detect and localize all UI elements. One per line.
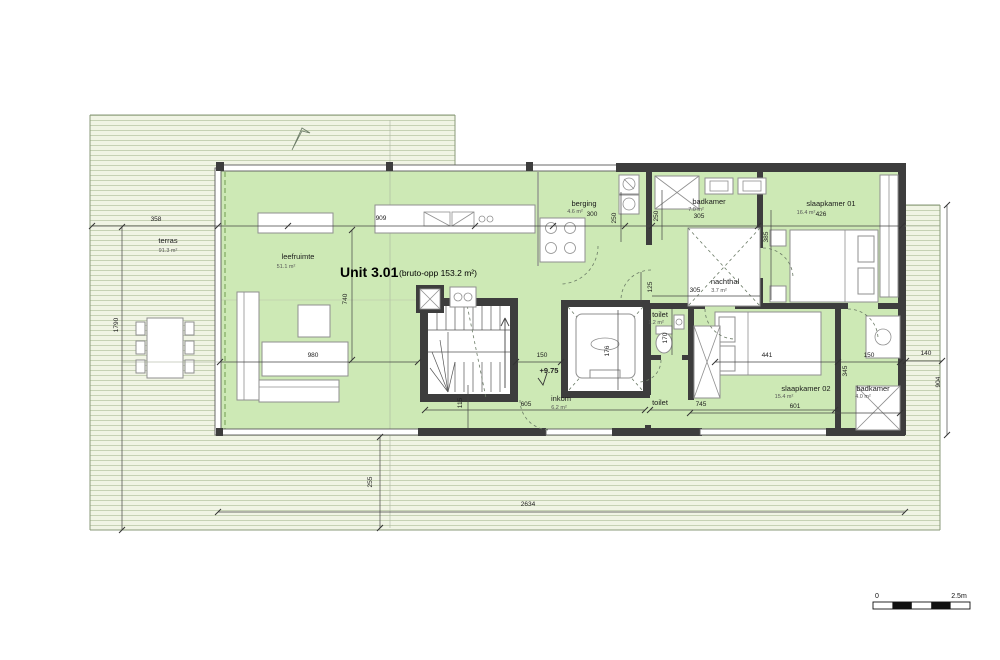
laundry-appliances [619,175,639,214]
pillow [719,346,735,371]
room-label-terras: terras [158,236,177,245]
hand-basin [674,315,684,329]
room-label-slaapkamer1: slaapkamer 01 [806,199,855,208]
tv-cabinet [258,213,333,233]
dim-300: 300 [587,211,598,218]
dim-745: 745 [696,401,707,408]
dim-255: 255 [367,476,374,487]
coffee-table [298,305,330,337]
room-area-berging: 4.6 m² [567,209,583,215]
room-label-badkamer1: badkamer [692,197,726,206]
room-label-leefruimte: leefruimte [282,252,315,261]
staircase [420,298,518,402]
room-area-terras: 91.3 m² [159,248,178,254]
dim-170: 170 [662,332,669,343]
dim-358: 358 [151,216,162,223]
rug [262,342,348,376]
room-label-slaapkamer2: slaapkamer 02 [781,384,830,393]
dim-441: 441 [762,352,773,359]
unit-title: Unit 3.01 [340,264,399,280]
pillow [858,236,874,262]
dim-305-badkamer: 305 [694,213,705,220]
dim-305-nachthal: 305 [690,287,701,294]
room-area-inkom: 6.2 m² [551,405,567,411]
room-area-nachthal: 3.7 m² [711,288,727,294]
room-area-leefruimte: 51.1 m² [277,264,296,270]
dim-250a: 250 [611,212,618,223]
dim-2634: 2634 [521,501,536,508]
level-marker: +9.75 [540,366,559,375]
elevator-door [590,370,620,378]
room-label-toilet2: toilet [652,398,669,407]
floor-plan-page: Unit 3.01 (bruto-opp 153.2 m²) +9.75 ter… [0,0,1000,660]
room-area-badkamer2: 4.0 m² [855,394,871,400]
room-area-slaapkamer1: 16.4 m² [797,210,816,216]
sofa [237,292,259,400]
room-area-slaapkamer2: 15.4 m² [775,394,794,400]
scale-bar-end: 2.5m [951,593,967,600]
dim-150-hall: 150 [537,352,548,359]
room-label-badkamer2: badkamer [856,384,890,393]
washbasin [738,178,766,194]
scale-bar: 0 2.5m [873,593,970,609]
unit-gross-area: (bruto-opp 153.2 m²) [399,268,477,278]
pillow [719,317,735,342]
pillow [858,268,874,294]
dim-385: 385 [763,231,770,242]
dim-909: 909 [376,215,387,222]
dim-125: 125 [647,281,654,292]
scale-bar-start: 0 [875,593,879,600]
washbasin [705,178,733,194]
kitchen-counter [375,205,535,233]
dim-140: 140 [921,350,932,357]
room-label-inkom: inkom [551,394,571,403]
room-label-nachthal: nachthal [711,277,740,286]
dim-740: 740 [342,293,349,304]
room-label-toilet1: toilet [652,310,669,319]
dim-601: 601 [790,403,801,410]
dim-904: 904 [935,376,942,387]
room-area-toilet1: 1.2 m² [648,320,664,326]
nightstand [770,286,786,302]
dim-980: 980 [308,352,319,359]
dim-176: 176 [604,345,611,356]
dim-1790: 1790 [113,317,120,332]
dim-345: 345 [842,365,849,376]
dim-150-badkamer: 150 [864,352,875,359]
nightstand [770,230,786,246]
terrace-dining-set [136,318,194,378]
dim-605: 605 [521,401,532,408]
dim-115: 115 [457,397,464,408]
floor-plan-canvas: Unit 3.01 (bruto-opp 153.2 m²) +9.75 ter… [0,0,1000,660]
dim-250b: 250 [653,210,660,221]
room-label-berging: berging [571,199,596,208]
dim-426: 426 [816,211,827,218]
